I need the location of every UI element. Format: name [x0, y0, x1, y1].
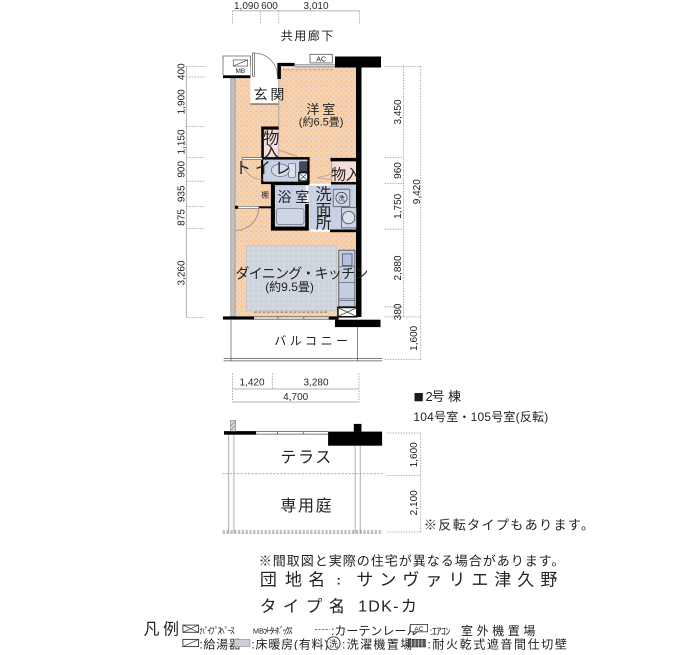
svg-text:4,700: 4,700	[283, 392, 308, 403]
svg-text:AC: AC	[316, 56, 326, 63]
svg-text:3,280: 3,280	[303, 377, 328, 388]
svg-text:※反転タイプもあります。: ※反転タイプもあります。	[424, 518, 596, 533]
svg-text:洗: 洗	[338, 194, 345, 203]
svg-text::耐火乾式遮音間仕切壁: :耐火乾式遮音間仕切壁	[428, 636, 569, 650]
svg-text:所: 所	[316, 214, 332, 232]
svg-text:104号室・105号室(反転): 104号室・105号室(反転)	[413, 409, 548, 424]
svg-text:MB: MB	[236, 68, 246, 75]
svg-text:浴室: 浴室	[278, 189, 313, 205]
svg-text:3,010: 3,010	[303, 1, 328, 12]
svg-text:号棟: 号棟	[432, 389, 465, 404]
svg-text:1DK-: 1DK-	[358, 599, 400, 616]
svg-text:1,090: 1,090	[234, 1, 259, 12]
svg-text:団: 団	[260, 571, 277, 590]
svg-text:カ: カ	[401, 599, 417, 616]
svg-text:(約9.5畳): (約9.5畳)	[265, 279, 314, 294]
svg-text:875: 875	[177, 209, 188, 226]
svg-text:1,900: 1,900	[177, 89, 188, 114]
svg-text:400: 400	[177, 63, 188, 80]
svg-text:専用庭: 専用庭	[280, 497, 333, 515]
svg-text:洋室: 洋室	[306, 102, 338, 117]
svg-text:1,150: 1,150	[177, 129, 188, 154]
svg-text:洗: 洗	[329, 638, 338, 649]
svg-text:共用廊下: 共用廊下	[281, 28, 335, 43]
svg-text::ﾒｰﾀｰﾎﾞｯｸｽ: :ﾒｰﾀｰﾎﾞｯｸｽ	[264, 626, 294, 636]
svg-text:600: 600	[261, 1, 278, 12]
svg-text:地: 地	[285, 571, 302, 590]
svg-text:(約6.5畳): (約6.5畳)	[299, 115, 344, 129]
svg-text:3,260: 3,260	[177, 260, 188, 285]
svg-text:900: 900	[177, 161, 188, 178]
svg-text:AC: AC	[414, 626, 423, 633]
svg-text:室外機置場: 室外機置場	[461, 623, 539, 638]
svg-text::ﾊﾟｲﾌﾟｽﾍﾟｰｽ: :ﾊﾟｲﾌﾟｽﾍﾟｰｽ	[199, 626, 235, 636]
svg-text:380: 380	[393, 303, 404, 320]
svg-text:物入: 物入	[331, 166, 361, 183]
svg-text::ｴｱｺﾝ: :ｴｱｺﾝ	[430, 627, 451, 638]
svg-text::洗濯機置場: :洗濯機置場	[342, 636, 414, 650]
svg-text:テラス: テラス	[280, 450, 332, 467]
svg-text:玄関: 玄関	[254, 86, 288, 102]
svg-text:凡例: 凡例	[144, 621, 183, 639]
svg-text:洗: 洗	[316, 185, 332, 203]
svg-text:2,880: 2,880	[393, 255, 404, 280]
svg-text::: :	[337, 573, 341, 588]
svg-text:1,420: 1,420	[239, 377, 264, 388]
svg-text:MB: MB	[253, 627, 264, 636]
svg-text:1,750: 1,750	[393, 193, 404, 218]
svg-text:バルコニー: バルコニー	[274, 334, 351, 348]
svg-text:名: 名	[308, 571, 325, 590]
svg-text::カーテンレール: :カーテンレール	[331, 624, 418, 638]
svg-text:※間取図と実際の住宅が異なる場合があります。: ※間取図と実際の住宅が異なる場合があります。	[259, 554, 566, 569]
svg-text::: :	[337, 599, 341, 614]
svg-text:棚: 棚	[261, 189, 269, 199]
svg-text:トイレ: トイレ	[235, 160, 295, 177]
svg-text:3,450: 3,450	[393, 99, 404, 124]
svg-text:1,600: 1,600	[409, 442, 420, 467]
svg-text:9,420: 9,420	[412, 179, 423, 204]
svg-text:サンヴァリエ津久野: サンヴァリエ津久野	[356, 571, 563, 590]
svg-text:935: 935	[177, 185, 188, 202]
svg-text:1,600: 1,600	[409, 325, 420, 350]
svg-text::床暖房(有料): :床暖房(有料)	[251, 636, 329, 650]
svg-text:2,100: 2,100	[409, 490, 420, 515]
svg-text:入: 入	[263, 144, 279, 161]
svg-text:960: 960	[393, 162, 404, 179]
